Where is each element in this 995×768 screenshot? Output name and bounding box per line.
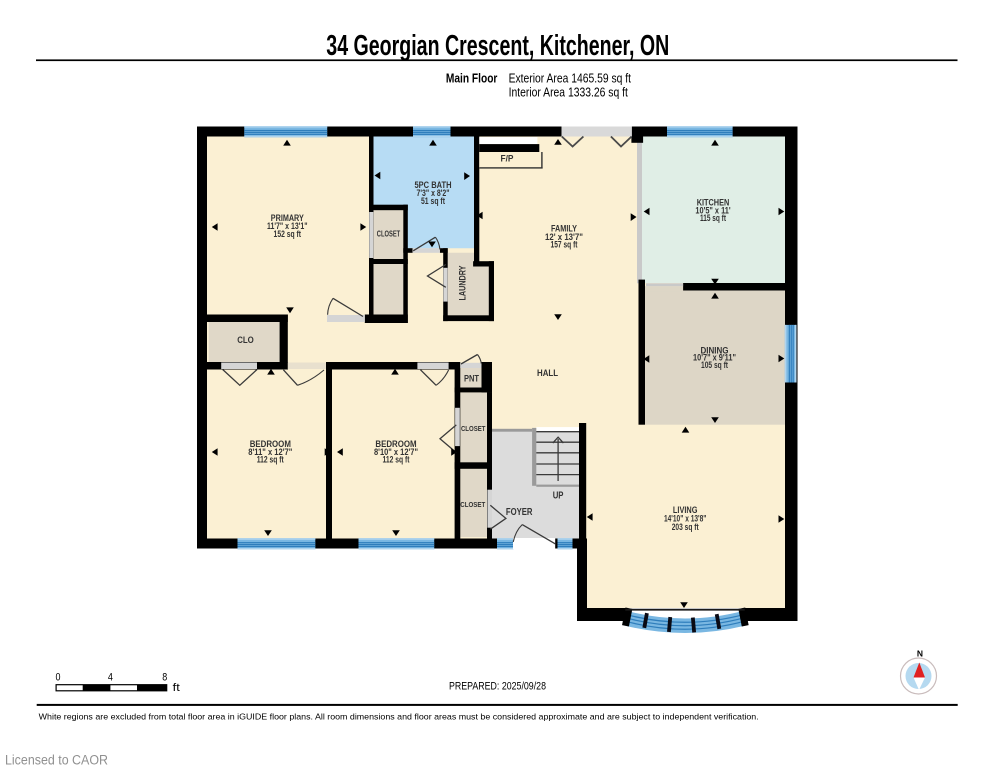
- svg-text:4: 4: [108, 672, 113, 684]
- svg-text:White regions are excluded fro: White regions are excluded from total fl…: [39, 712, 759, 722]
- svg-text:0: 0: [56, 672, 61, 684]
- svg-text:115 sq ft: 115 sq ft: [700, 213, 726, 223]
- svg-text:PNT: PNT: [464, 374, 479, 384]
- svg-text:105 sq ft: 105 sq ft: [701, 360, 728, 370]
- svg-text:CLOSET: CLOSET: [461, 424, 486, 433]
- svg-text:UP: UP: [553, 491, 564, 502]
- svg-text:34 Georgian Crescent, Kitchene: 34 Georgian Crescent, Kitchener, ON: [326, 30, 669, 62]
- svg-text:F/P: F/P: [501, 153, 514, 163]
- svg-text:N: N: [917, 649, 923, 659]
- svg-text:152 sq ft: 152 sq ft: [274, 229, 302, 239]
- svg-text:Licensed to CAOR: Licensed to CAOR: [5, 752, 108, 767]
- svg-text:PREPARED: 2025/09/28: PREPARED: 2025/09/28: [449, 681, 546, 693]
- svg-text:Interior Area 1333.26 sq ft: Interior Area 1333.26 sq ft: [509, 85, 629, 100]
- svg-text:51 sq ft: 51 sq ft: [421, 196, 445, 206]
- svg-text:ft: ft: [173, 682, 180, 694]
- svg-text:CLO: CLO: [237, 335, 254, 345]
- svg-text:LAUNDRY: LAUNDRY: [458, 266, 468, 301]
- svg-text:203 sq ft: 203 sq ft: [672, 522, 699, 532]
- svg-text:Main Floor: Main Floor: [446, 71, 498, 86]
- svg-text:CLOSET: CLOSET: [460, 500, 485, 509]
- svg-text:112 sq ft: 112 sq ft: [257, 455, 284, 465]
- svg-text:FOYER: FOYER: [506, 507, 533, 518]
- svg-text:8: 8: [162, 672, 167, 684]
- svg-text:CLOSET: CLOSET: [377, 230, 400, 239]
- svg-text:112 sq ft: 112 sq ft: [383, 455, 410, 465]
- svg-text:Exterior Area 1465.59 sq ft: Exterior Area 1465.59 sq ft: [509, 71, 632, 86]
- svg-text:157 sq ft: 157 sq ft: [551, 240, 578, 250]
- svg-text:HALL: HALL: [537, 368, 558, 379]
